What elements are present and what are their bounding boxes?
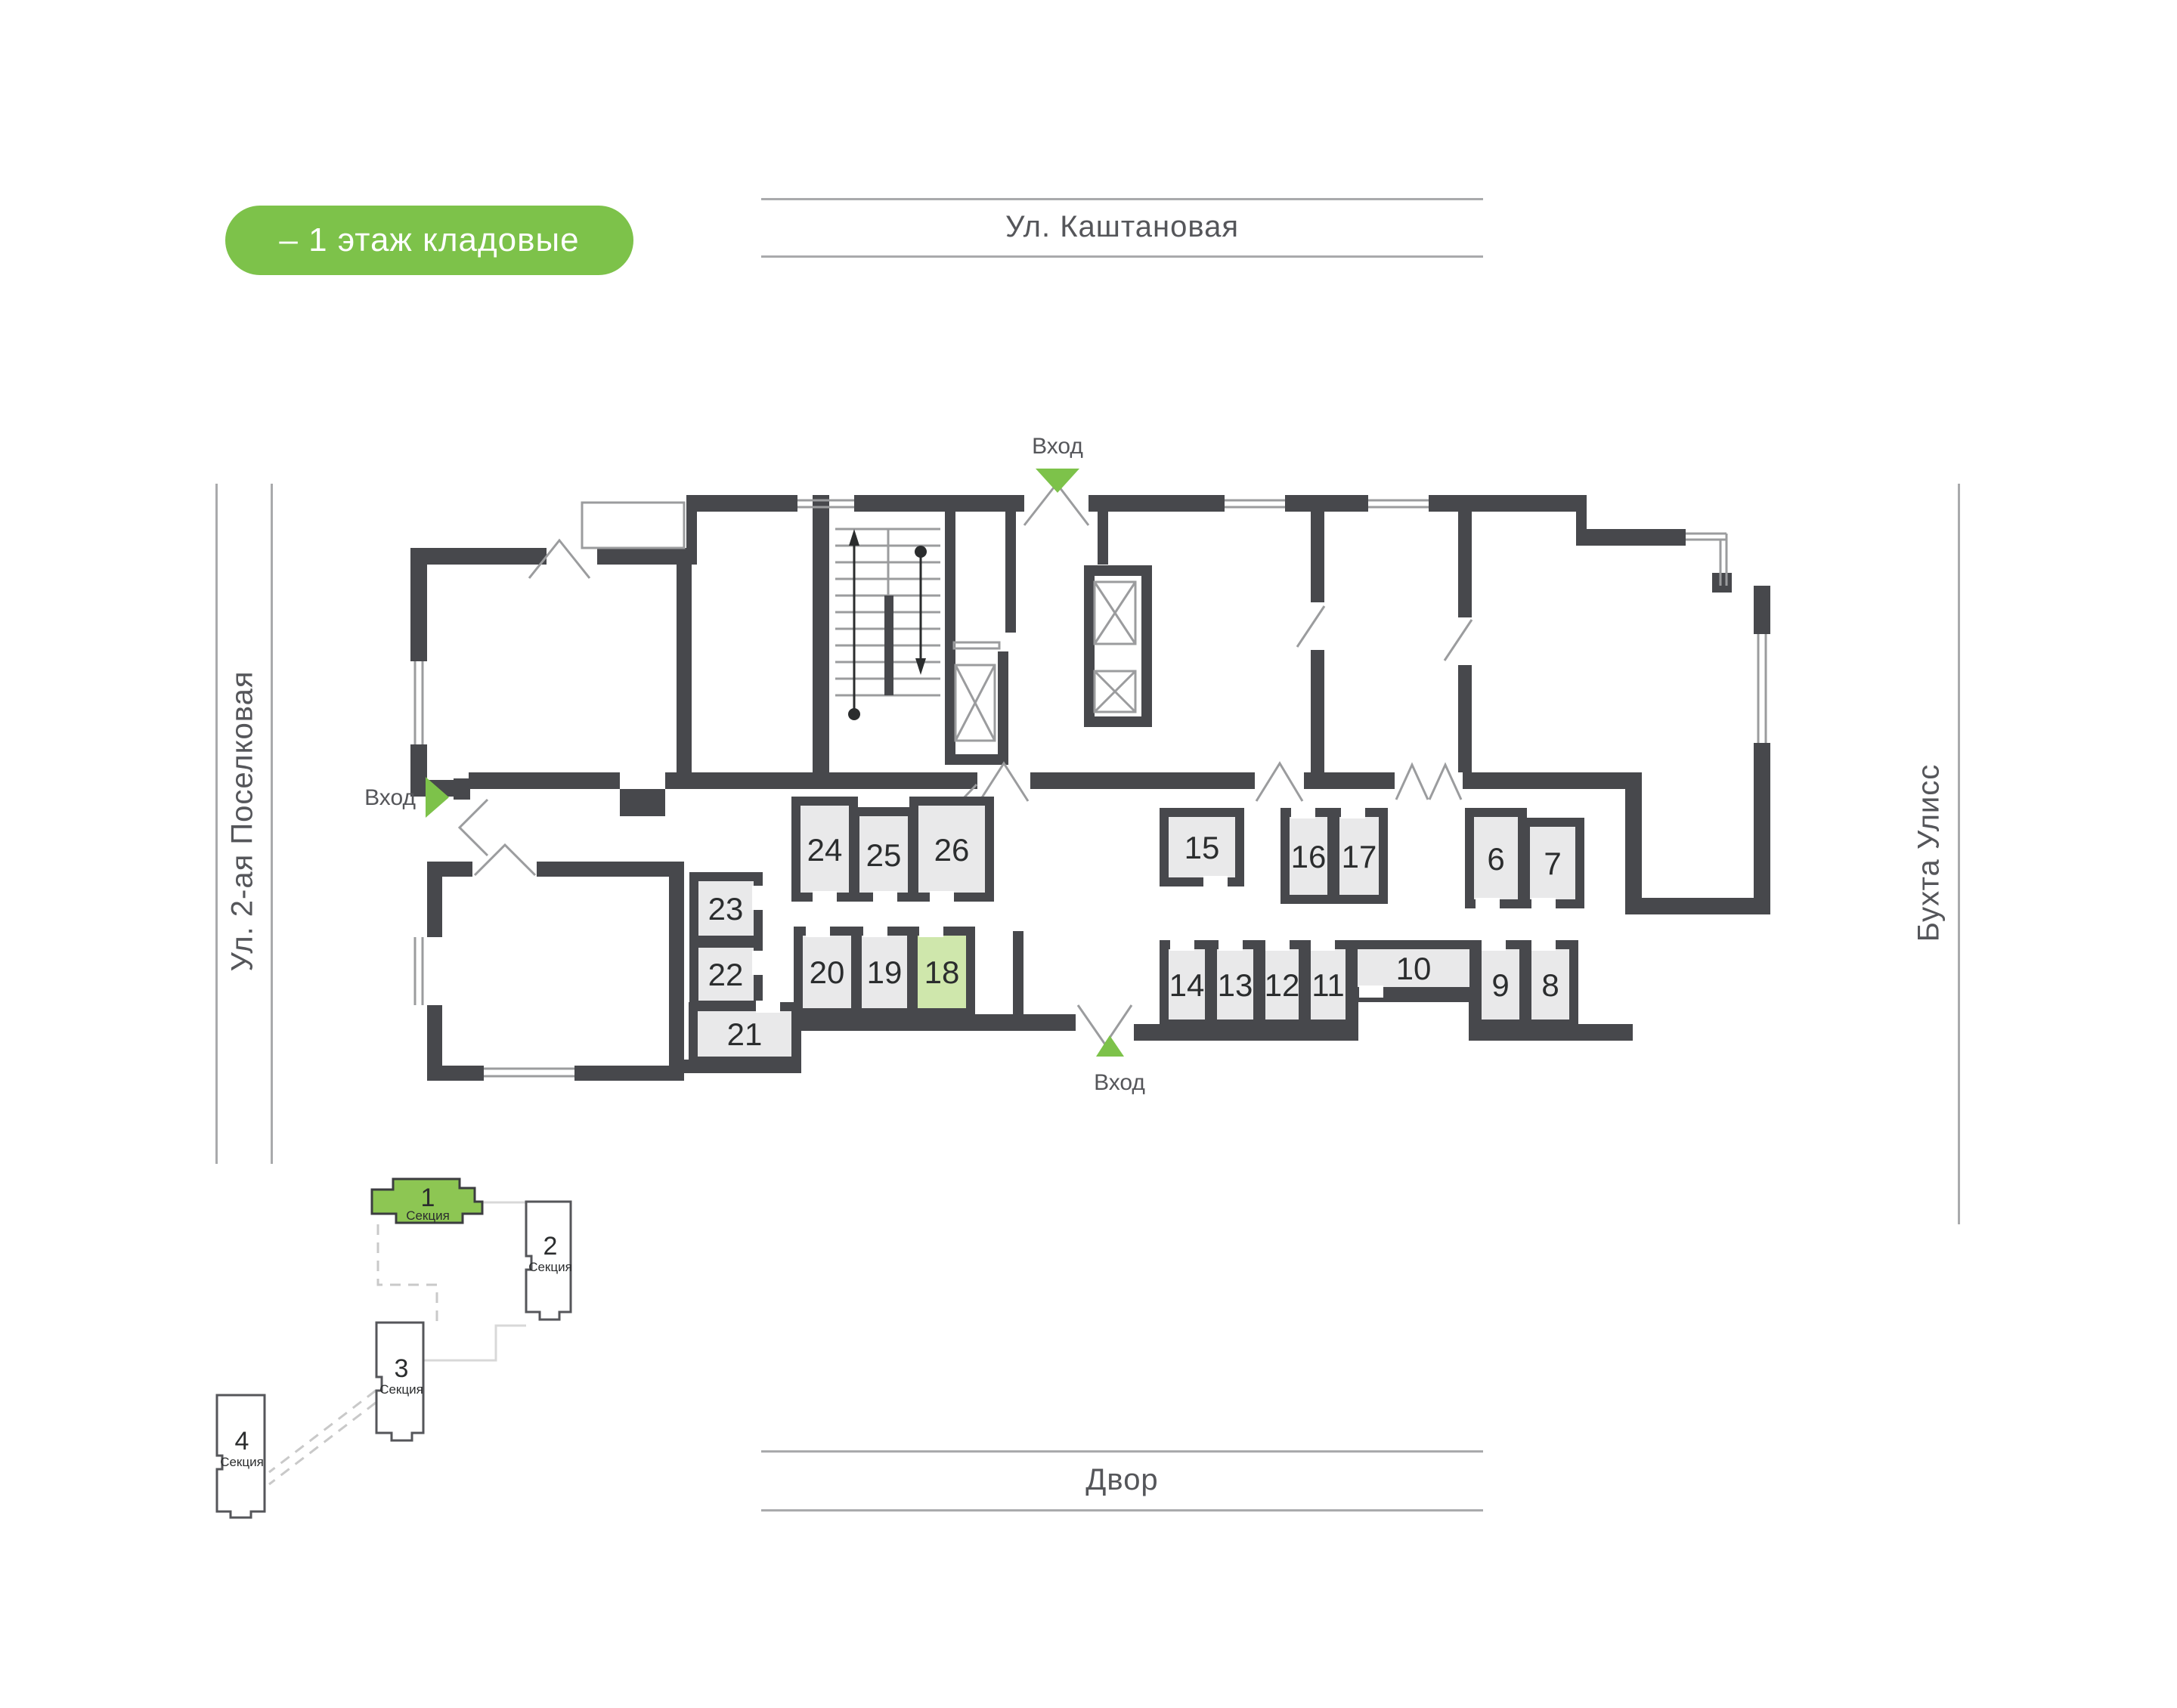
room-number: 14 <box>1169 967 1205 1003</box>
entrance-label: Вход <box>364 785 416 810</box>
minimap-section-3[interactable]: 3 Секция <box>376 1323 423 1440</box>
section-label: Секция <box>528 1260 572 1274</box>
minimap: 1 Секция 2 Секция 3 Секция 4 Секция <box>217 1179 572 1518</box>
room-number: 9 <box>1491 967 1509 1003</box>
room-number: 26 <box>934 832 970 868</box>
storage-room-13[interactable]: 13 <box>1212 945 1258 1024</box>
storage-room-6[interactable]: 6 <box>1469 812 1522 904</box>
storage-room-17[interactable]: 17 <box>1335 812 1383 899</box>
room-number: 11 <box>1311 967 1345 1003</box>
storage-room-9[interactable]: 9 <box>1477 945 1524 1024</box>
page: – 1 этаж кладовые Ул. Каштановая Двор Ул… <box>0 0 2177 1708</box>
elevator-shaft-icon <box>1095 671 1135 712</box>
section-label: Секция <box>220 1455 264 1469</box>
room-number: 8 <box>1541 967 1559 1003</box>
storage-room-16[interactable]: 16 <box>1285 812 1332 899</box>
storage-room-20[interactable]: 20 <box>798 931 856 1013</box>
elevator-shaft-icon <box>1095 582 1135 644</box>
storage-room-21[interactable]: 21 <box>693 1007 796 1061</box>
room-number: 7 <box>1544 846 1561 881</box>
room-number: 22 <box>708 957 744 992</box>
storage-room-10[interactable]: 10 <box>1353 945 1474 992</box>
storage-room-15[interactable]: 15 <box>1164 812 1240 882</box>
storage-room-19[interactable]: 19 <box>857 931 912 1013</box>
section-number: 4 <box>235 1427 249 1456</box>
minimap-section-4[interactable]: 4 Секция <box>217 1395 265 1518</box>
section-label: Секция <box>406 1208 450 1223</box>
storage-room-24[interactable]: 24 <box>796 801 853 897</box>
room-number: 12 <box>1265 967 1300 1003</box>
room-number: 15 <box>1184 830 1220 865</box>
entrance-bottom: Вход <box>1094 1035 1145 1095</box>
room-number: 21 <box>727 1016 763 1052</box>
room-number: 6 <box>1487 841 1504 877</box>
entrance-label: Вход <box>1032 434 1083 459</box>
storage-room-7[interactable]: 7 <box>1525 822 1580 904</box>
storage-room-18-highlighted[interactable]: 18 <box>913 931 971 1013</box>
section-number: 2 <box>543 1232 558 1261</box>
room-number: 10 <box>1396 951 1432 986</box>
section-number: 3 <box>395 1354 409 1383</box>
minimap-section-1-active[interactable]: 1 Секция <box>372 1179 482 1223</box>
floor-plan: 24 25 26 23 22 21 <box>0 0 2177 1708</box>
room-number: 17 <box>1342 839 1377 874</box>
room-number: 25 <box>866 837 902 873</box>
storage-room-11[interactable]: 11 <box>1306 945 1350 1024</box>
entrance-arrow-icon <box>1036 469 1079 493</box>
elevator-shaft-icon <box>955 665 995 741</box>
storage-room-23[interactable]: 23 <box>694 877 758 940</box>
room-number: 24 <box>807 832 843 868</box>
storage-room-12[interactable]: 12 <box>1261 945 1303 1024</box>
storage-room-14[interactable]: 14 <box>1164 945 1209 1024</box>
room-number: 20 <box>810 955 845 990</box>
stairs <box>835 529 940 720</box>
storage-room-8[interactable]: 8 <box>1527 945 1574 1024</box>
room-number: 16 <box>1291 839 1327 874</box>
storage-room-25[interactable]: 25 <box>855 812 912 897</box>
room-number: 19 <box>867 955 903 990</box>
entrance-top: Вход <box>1032 434 1083 493</box>
section-label: Секция <box>379 1382 423 1397</box>
room-number: 18 <box>924 955 960 990</box>
storage-room-26[interactable]: 26 <box>914 801 989 897</box>
room-number: 23 <box>708 891 744 927</box>
minimap-section-2[interactable]: 2 Секция <box>526 1202 572 1320</box>
room-number: 13 <box>1218 967 1253 1003</box>
entrance-label: Вход <box>1094 1070 1145 1095</box>
storage-room-22[interactable]: 22 <box>694 943 758 1005</box>
